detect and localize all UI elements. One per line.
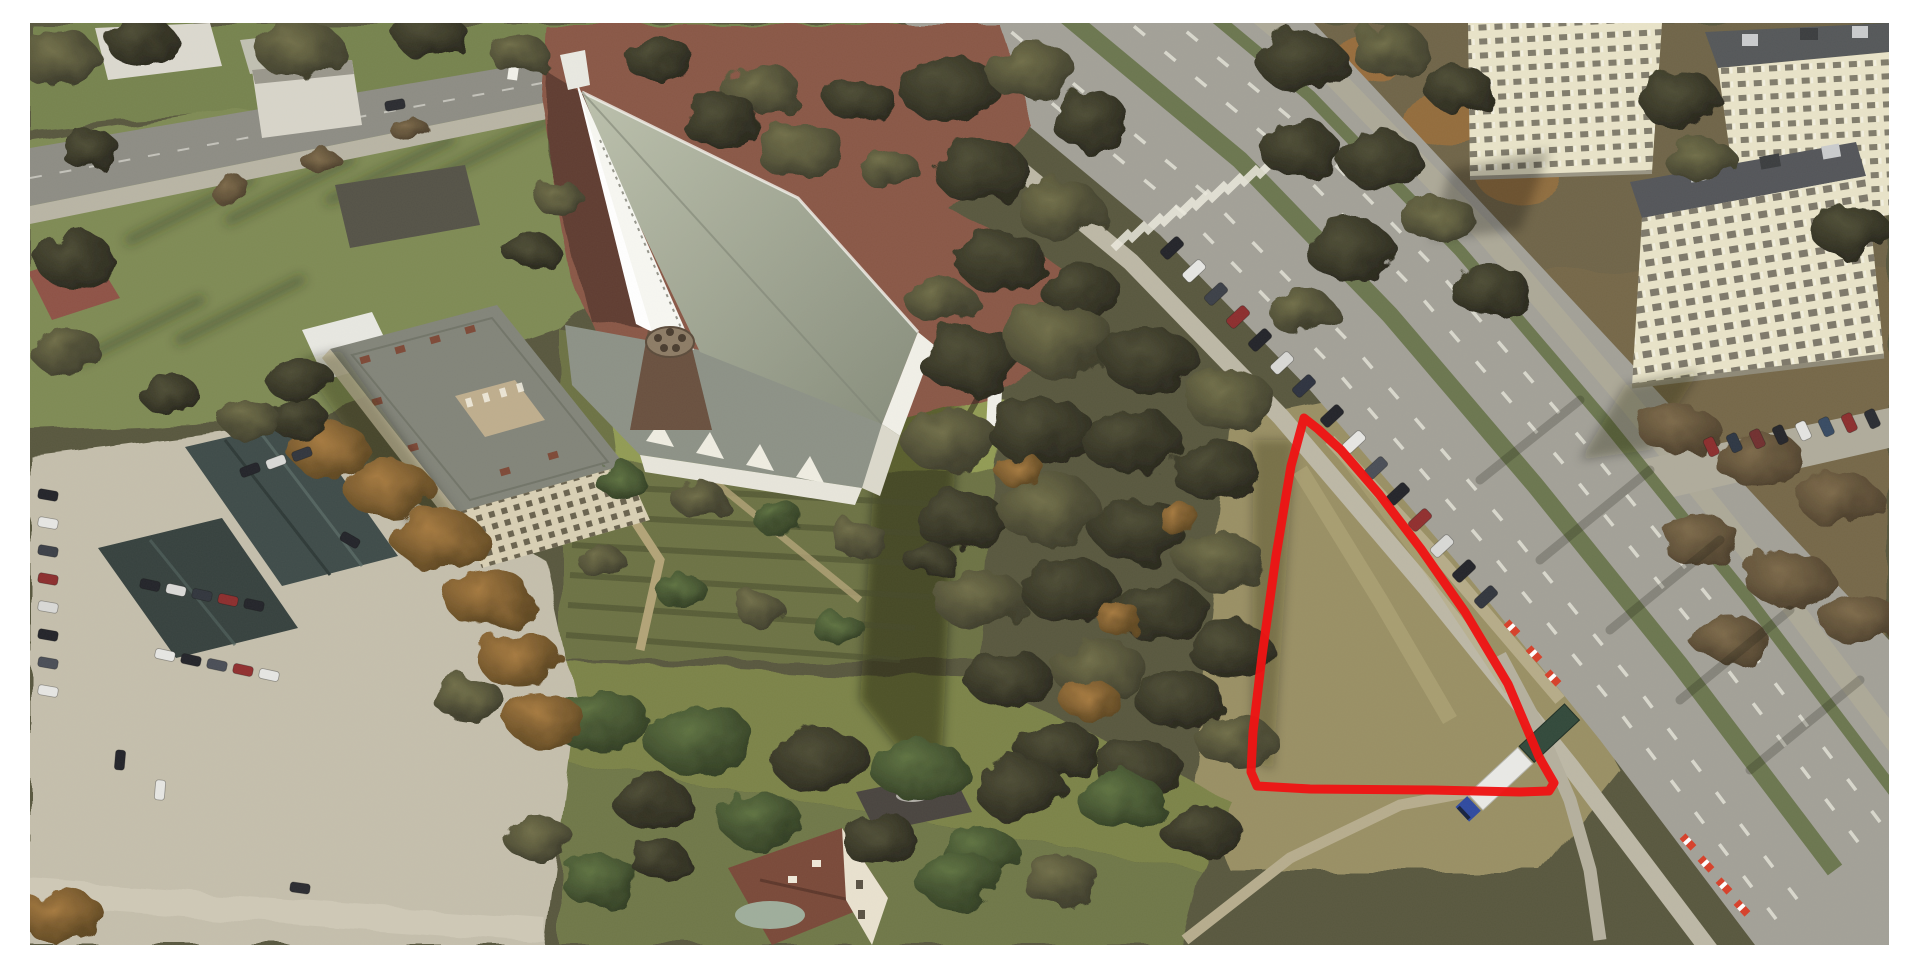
aerial-map-canvas[interactable] [0, 0, 1920, 960]
aerial-view-image [0, 0, 1920, 960]
grain-overlay [30, 23, 1889, 945]
